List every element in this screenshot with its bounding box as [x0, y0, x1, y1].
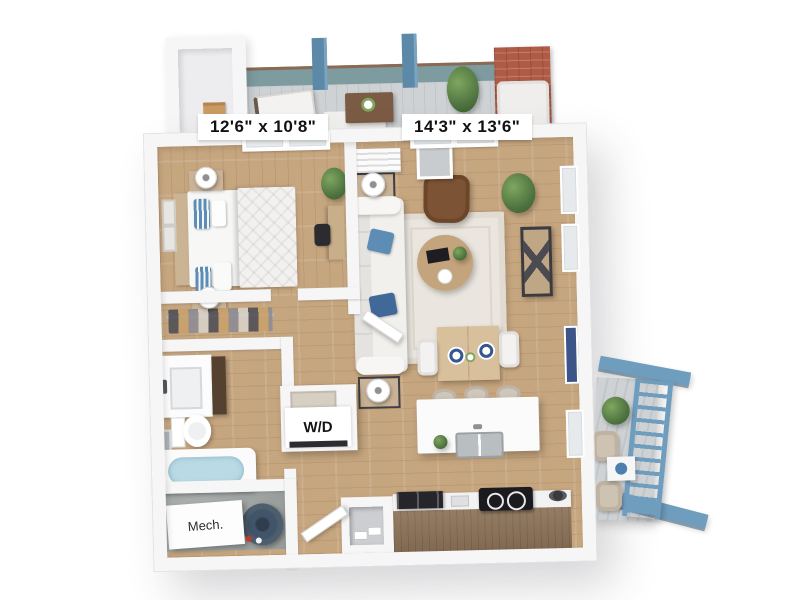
apartment-unit-scene: Mech. W/D — [0, 0, 800, 600]
washer-dryer-label: W/D — [303, 418, 333, 436]
floorplan-canvas: Mech. W/D — [0, 0, 800, 600]
unit-body: Mech. W/D — [144, 123, 597, 571]
living-dimensions-label: 14'3" x 13'6" — [402, 114, 532, 140]
balcony-glass-door — [564, 326, 579, 384]
patio-post-left — [312, 38, 328, 90]
washer-dryer-unit: W/D — [280, 384, 358, 452]
right-wall-window-2 — [561, 224, 580, 272]
outer-wall-frame — [144, 123, 597, 571]
balcony-chair-2 — [595, 481, 622, 512]
bedroom-dimensions-label: 12'6" x 10'8" — [198, 114, 328, 140]
washer-dryer-stripe — [289, 440, 347, 447]
right-wall-window-1 — [560, 166, 579, 214]
patio-post-right — [401, 34, 417, 88]
right-wall-window-3 — [566, 410, 585, 458]
balcony-right — [586, 354, 720, 532]
